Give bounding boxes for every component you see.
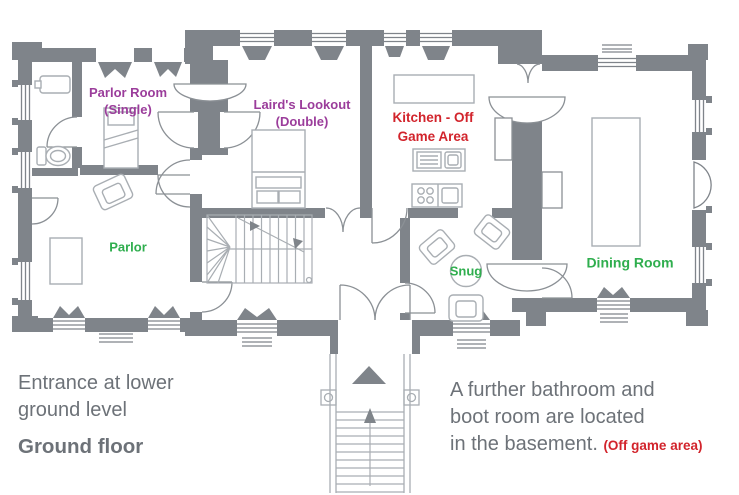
entrance-note: Entrance at lower ground level: [18, 370, 174, 424]
fireplace-lairds: [174, 84, 246, 101]
kitchen-island-icon: [394, 75, 474, 103]
up-arrow-icon: [352, 366, 386, 423]
stove-icon: [413, 149, 465, 171]
hob-counter-icon: [412, 184, 462, 207]
room-label-dining-room: Dining Room: [586, 255, 673, 272]
dining-table-icon: [592, 118, 640, 246]
toilet-icon: [37, 147, 70, 166]
room-label-parlor: Parlor: [109, 239, 147, 256]
basement-note: A further bathroom and boot room are loc…: [450, 377, 702, 459]
floor-title: Ground floor: [18, 433, 143, 460]
armchair-icon: [92, 173, 134, 211]
floor-plan-page: Parlor Room (Single) Laird's Lookout (Do…: [0, 0, 739, 495]
alcove-kitchen: [495, 118, 512, 160]
room-label-kitchen: Kitchen - Off Game Area: [393, 108, 474, 146]
double-bed-icon: [252, 130, 305, 208]
sink-icon: [35, 76, 70, 93]
room-label-lairds-lookout: Laird's Lookout (Double): [254, 96, 351, 130]
snug-chair-icon: [449, 295, 483, 321]
fireplace-dining: [487, 264, 567, 291]
snug-chair-icon: [418, 228, 456, 266]
entrance-staircase: [321, 354, 419, 493]
main-staircase: [207, 215, 312, 283]
room-label-snug: Snug: [450, 263, 483, 280]
room-label-parlor-room: Parlor Room (Single): [89, 84, 167, 118]
parlor-table-icon: [50, 238, 82, 284]
off-game-note: (Off game area): [603, 438, 702, 453]
alcove-dining: [542, 172, 562, 208]
snug-chair-icon: [473, 213, 511, 250]
